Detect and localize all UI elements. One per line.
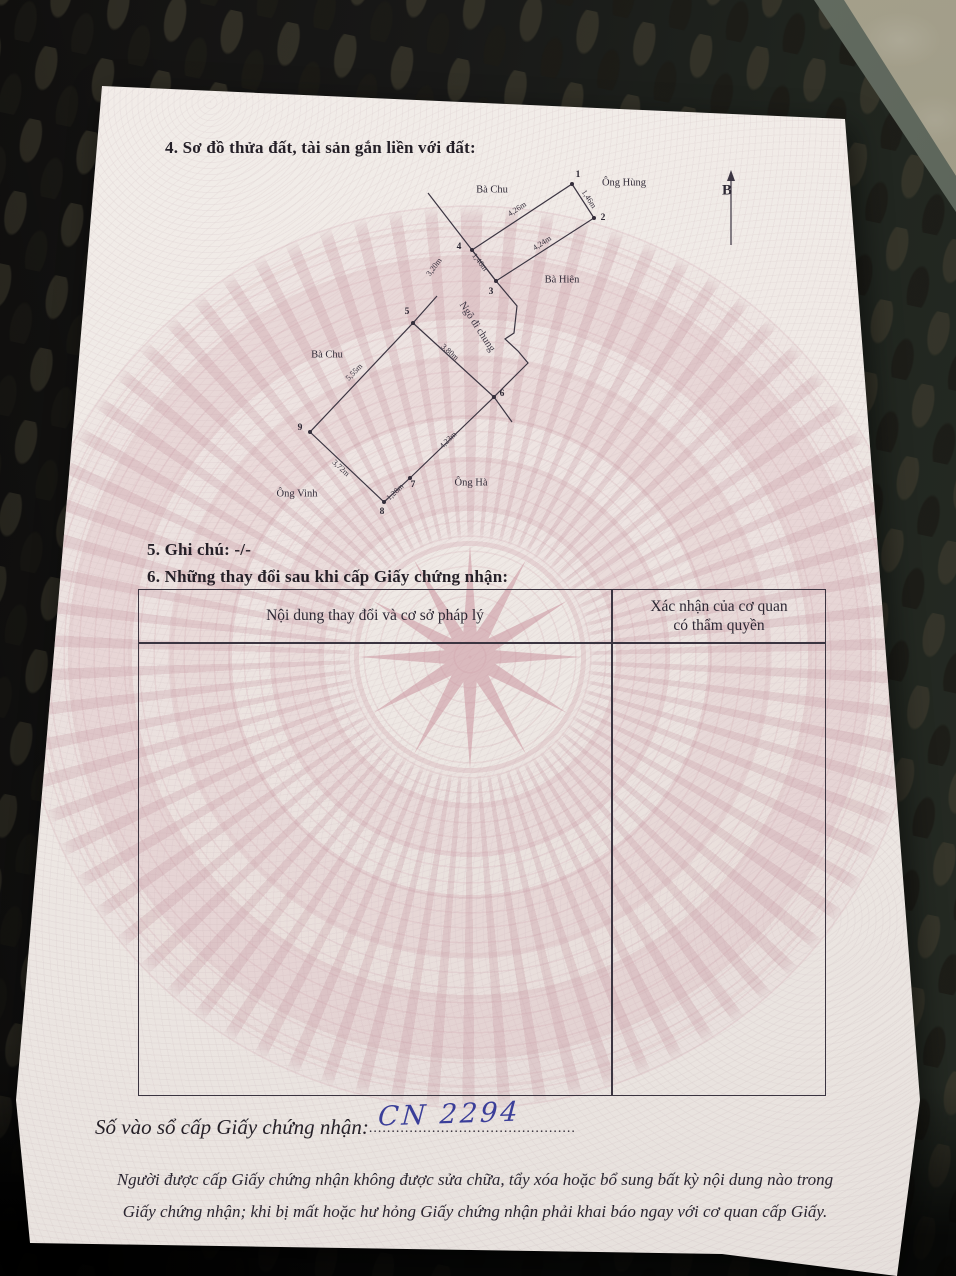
plot-vertex-dot bbox=[570, 182, 574, 186]
plot-vertex-dot bbox=[408, 476, 412, 480]
plot-boundary-line bbox=[472, 184, 594, 281]
north-indicator-label: B bbox=[722, 183, 732, 200]
plot-vertex-dot bbox=[382, 500, 386, 504]
plot-vertex-dot bbox=[492, 395, 496, 399]
plot-vertex-dot bbox=[308, 430, 312, 434]
photographed-land-certificate: 4. Sơ đồ thửa đất, tài sản gắn liền với … bbox=[0, 0, 956, 1276]
north-arrow-head bbox=[727, 170, 735, 181]
plot-vertex-dot bbox=[411, 321, 415, 325]
plot-vertex-dot bbox=[494, 279, 498, 283]
plot-diagram-svg bbox=[0, 0, 956, 1276]
plot-boundary-line bbox=[428, 193, 528, 422]
plot-boundary-line bbox=[310, 323, 494, 502]
plot-vertex-dot bbox=[592, 216, 596, 220]
certificate-paper: 4. Sơ đồ thửa đất, tài sản gắn liền với … bbox=[0, 0, 956, 1276]
certificate-paper-wrap: 4. Sơ đồ thửa đất, tài sản gắn liền với … bbox=[0, 0, 956, 1276]
plot-vertex-dot bbox=[470, 248, 474, 252]
plot-boundary-line bbox=[413, 296, 437, 323]
